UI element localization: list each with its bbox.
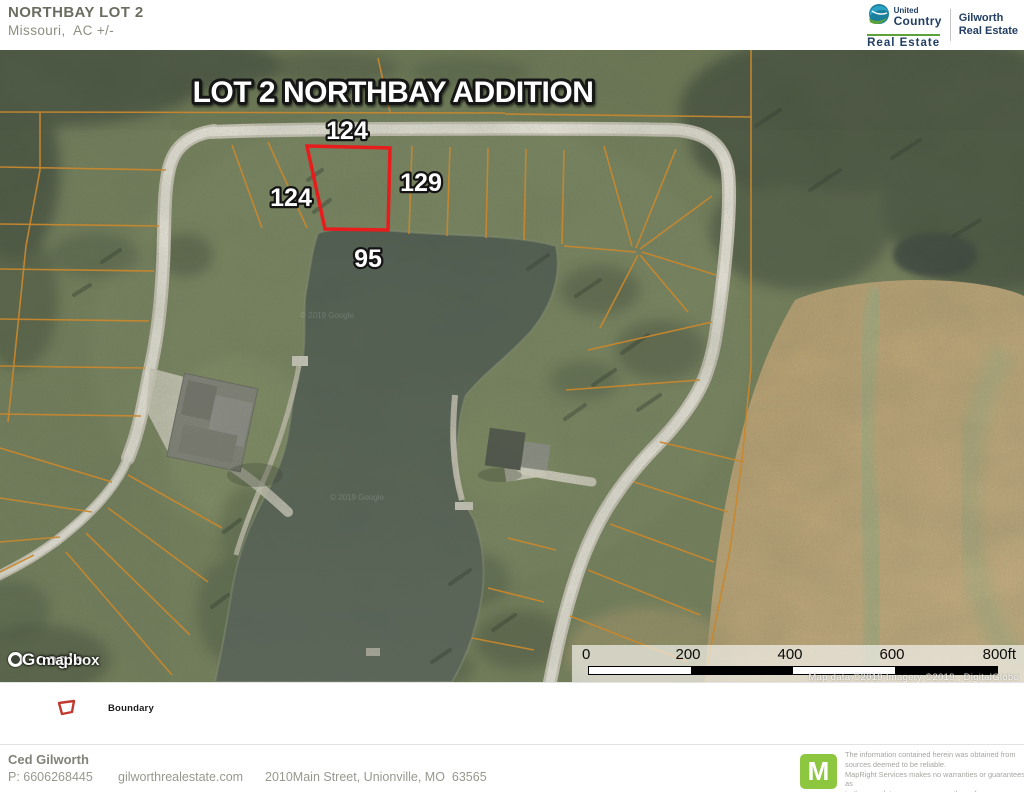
flyer-page: NORTHBAY LOT 2 Missouri, AC +/- United [0,0,1024,792]
scale-bar: 0 200 400 600 800ft Map data ©2019 Image… [572,645,1024,682]
map-title: LOT 2 NORTHBAY ADDITION [193,76,594,109]
boundary-legend-icon [56,699,78,717]
header: NORTHBAY LOT 2 Missouri, AC +/- United [0,0,1024,50]
legend-label: Boundary [108,703,154,714]
united-country-logo: United Country Real Estate [866,2,942,49]
agent-name: Ced Gilworth [8,752,89,767]
brand-block: United Country Real Estate Gilworth Real… [866,4,1020,46]
scale-label-400: 400 [777,646,802,663]
scale-label-800: 800ft [983,646,1016,663]
mapright-disclaimer: The information contained herein was obt… [845,750,1024,792]
imagery-attribution: Map data ©2019 Imagery ©2019 , DigitalGl… [808,672,1019,682]
globe-icon [866,2,892,33]
scale-label-200: 200 [675,646,700,663]
boundary-length-top: 124 [326,117,368,145]
uc-word-country: Country [894,15,942,27]
brand-divider [950,9,951,41]
legend-item-boundary: Boundary [56,699,154,717]
scale-label-600: 600 [879,646,904,663]
uc-real-estate-label: Real Estate [867,34,940,49]
satellite-map: © 2019 Google © 2019 Google LOT 2 NORTHB… [0,50,1024,682]
gilworth-brand: Gilworth Real Estate [959,12,1020,38]
map-canvas: © 2019 Google © 2019 Google LOT 2 NORTHB… [0,50,1024,682]
scale-label-0: 0 [582,646,590,663]
agent-website-link[interactable]: gilworthrealestate.com [118,770,243,784]
legend-bar: Boundary [0,682,1024,745]
gilworth-line2: Real Estate [959,25,1018,38]
mapright-logo: M [800,754,837,789]
page-title: NORTHBAY LOT 2 [8,4,144,21]
page-subtitle: Missouri, AC +/- [8,23,114,38]
mapright-letter: M [808,756,830,787]
mapbox-watermark: mapbox [42,652,100,669]
boundary-length-left: 124 [270,184,312,212]
boundary-length-right: 129 [400,169,442,197]
boundary-length-bottom: 95 [354,245,382,273]
gilworth-line1: Gilworth [959,12,1018,25]
agent-address: 2010Main Street, Unionville, MO 63565 [265,770,487,784]
agent-phone: P: 6606268445 [8,770,93,784]
svg-text:© 2019 Google: © 2019 Google [330,493,384,502]
mapbox-icon [8,652,23,667]
footer: Ced Gilworth P: 6606268445 gilworthreale… [0,744,1024,792]
svg-text:© 2019 Google: © 2019 Google [300,311,354,320]
